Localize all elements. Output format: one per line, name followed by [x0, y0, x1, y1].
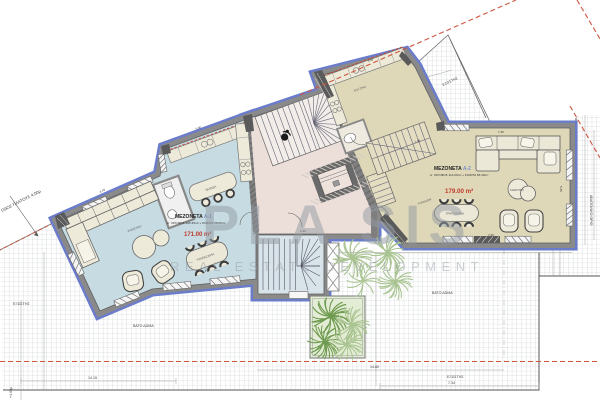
svg-text:REAL ESTATE DEVELOPMENT: REAL ESTATE DEVELOPMENT [170, 259, 484, 274]
svg-text:ΕΞΩΣΤΗΣ: ΕΞΩΣΤΗΣ [447, 375, 464, 379]
svg-text:PLA SIS: PLA SIS [202, 193, 474, 256]
svg-text:ΕΞΩΣΤΗΣ: ΕΞΩΣΤΗΣ [13, 302, 30, 306]
svg-text:ΒΑΤΟ ΔΩΜΑ: ΒΑΤΟ ΔΩΜΑ [432, 291, 453, 295]
svg-text:ΚΑΘΙΣΤΙΚΟ: ΚΑΘΙΣΤΙΚΟ [510, 188, 524, 192]
svg-text:14.15: 14.15 [88, 376, 97, 380]
svg-text:ΜΕΖΟΝΕΤΑ Α-2: ΜΕΖΟΝΕΤΑ Α-2 [434, 166, 471, 172]
svg-text:+4.00μ: +4.00μ [9, 387, 13, 398]
svg-text:ΑΝΑΤΟΛΙΚΟ ΟΡΙΟ: ΑΝΑΤΟΛΙΚΟ ΟΡΙΟ [589, 195, 593, 226]
svg-text:7.45: 7.45 [498, 130, 504, 134]
svg-text:7.34: 7.34 [448, 381, 455, 385]
svg-text:Α΄ ΟΡΟΦΟΣ 114.00m² + ΣΟΦΙΤΑ 65: Α΄ ΟΡΟΦΟΣ 114.00m² + ΣΟΦΙΤΑ 65.30m² [430, 173, 488, 177]
svg-text:7.26: 7.26 [488, 233, 494, 237]
svg-text:14.80: 14.80 [370, 365, 379, 369]
svg-text:5.45: 5.45 [559, 186, 563, 192]
svg-text:ΒΑΤΟ ΔΩΜΑ: ΒΑΤΟ ΔΩΜΑ [133, 324, 154, 328]
